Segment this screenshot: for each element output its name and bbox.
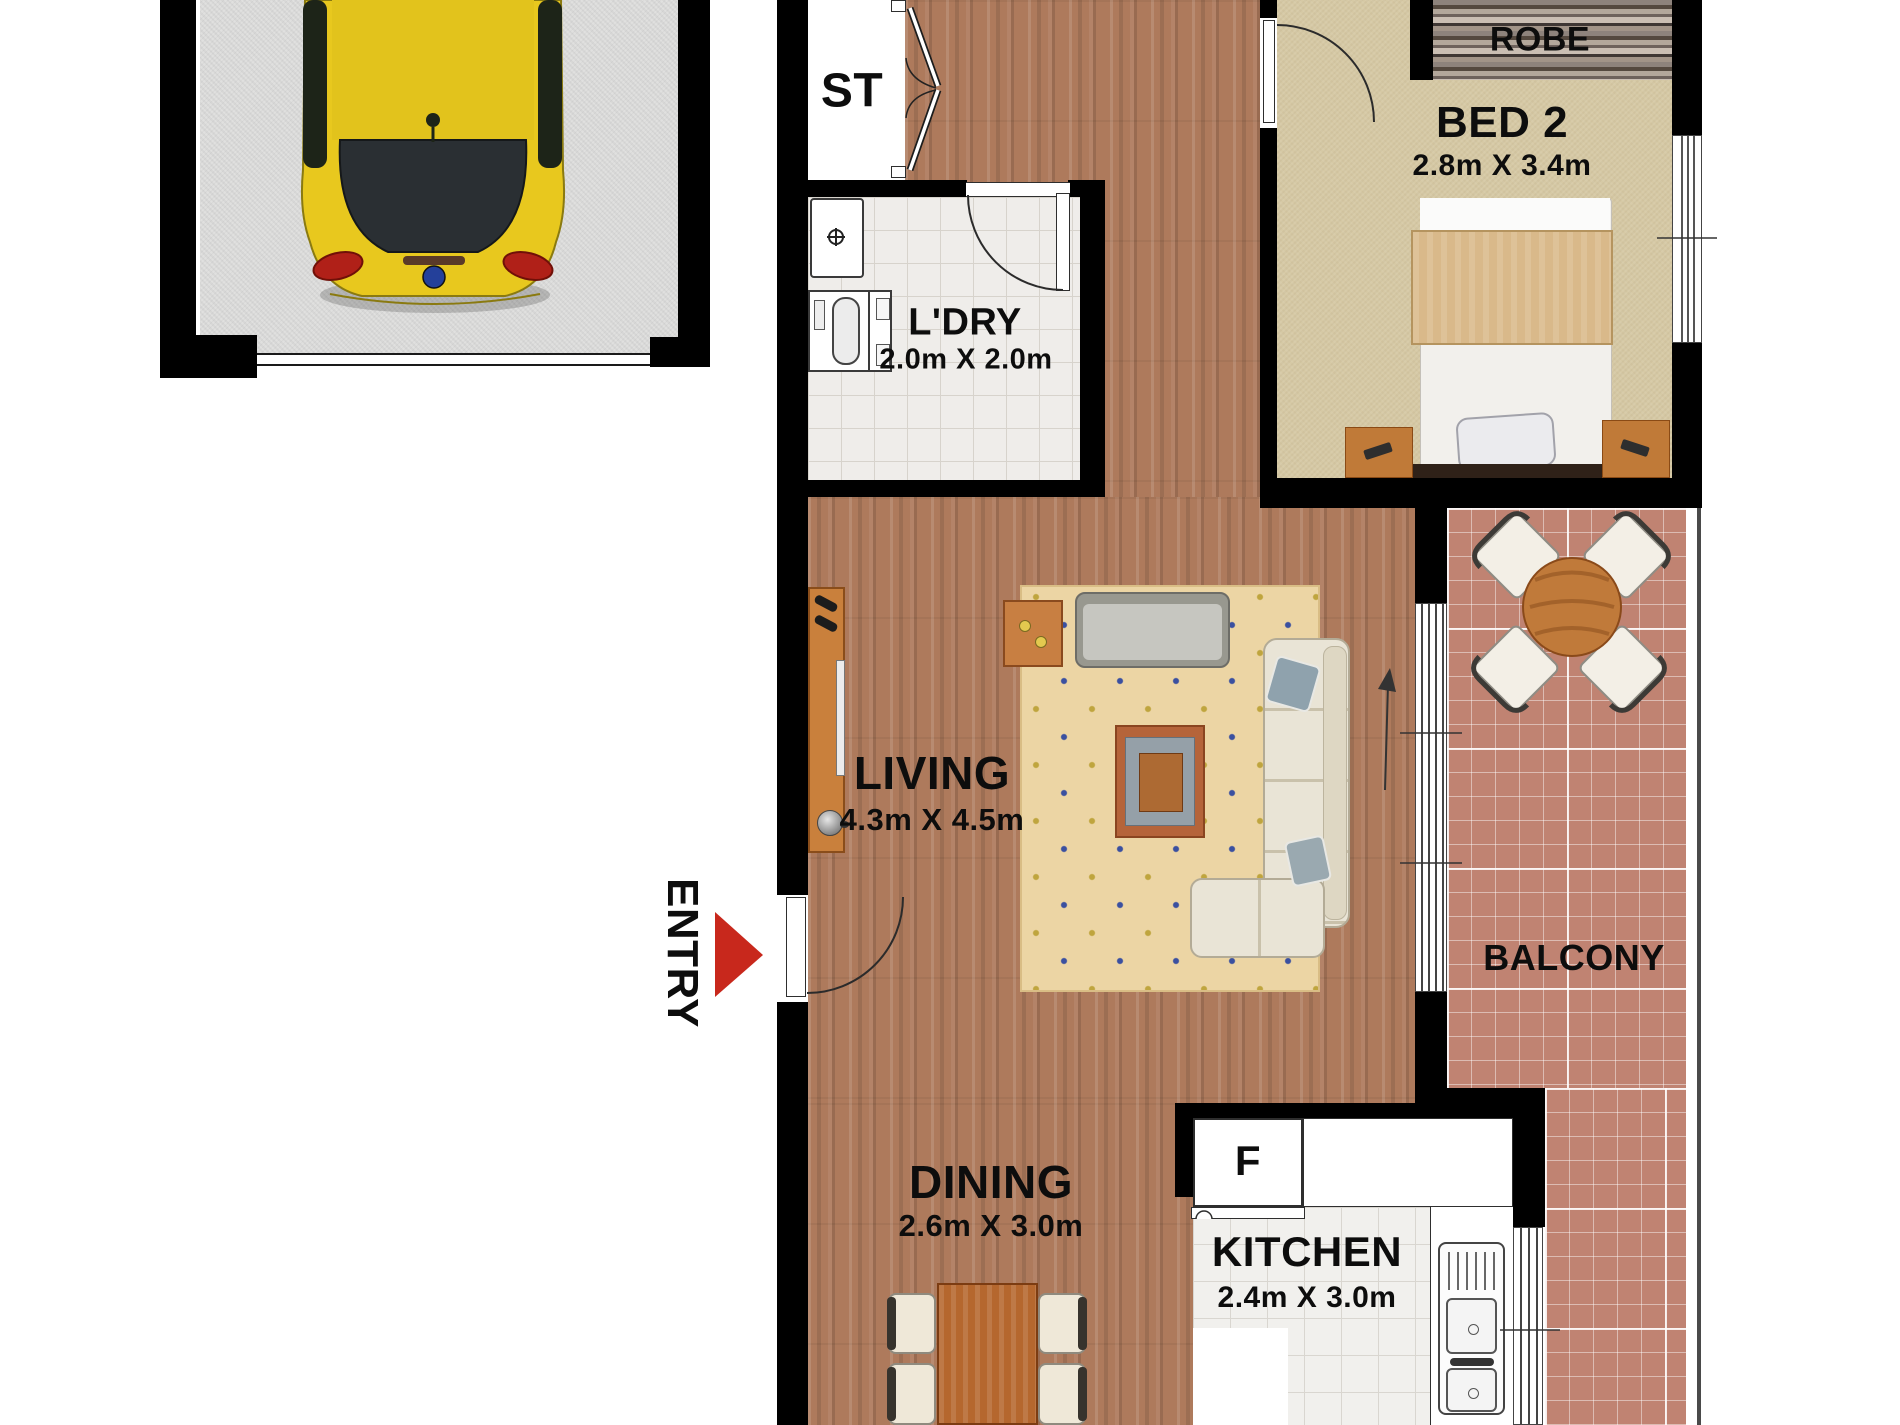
- tap-symbol-icon: [827, 228, 845, 246]
- balcony-table: [1523, 558, 1621, 656]
- laundry-door-arc: [968, 195, 1063, 290]
- floor-plan: ST L'DRY 2.0m X 2.0m ROBE BED 2 2.8m X 3…: [0, 0, 1900, 1425]
- laundry-dims: 2.0m X 2.0m: [879, 344, 1052, 377]
- car: [302, 0, 564, 313]
- fridge-handle: [1196, 1211, 1212, 1219]
- entry-label: ENTRY: [657, 878, 707, 1028]
- living-label: LIVING: [854, 746, 1010, 800]
- living-dims: 4.3m X 4.5m: [840, 802, 1025, 838]
- entry-arrow-icon: [715, 912, 763, 997]
- kitchen-label: KITCHEN: [1212, 1228, 1402, 1276]
- kitchen-dims: 2.4m X 3.0m: [1218, 1281, 1397, 1315]
- bed2-door-arc: [1277, 25, 1374, 122]
- dining-label: DINING: [909, 1155, 1073, 1209]
- robe-label: ROBE: [1490, 21, 1590, 60]
- laundry-label: L'DRY: [908, 302, 1022, 345]
- dining-dims: 2.6m X 3.0m: [899, 1208, 1084, 1244]
- storage-bifold-door: [906, 8, 938, 170]
- fridge-label: F: [1235, 1137, 1261, 1185]
- entry-door-arc: [807, 897, 903, 993]
- north-arrow-icon: [1378, 668, 1396, 790]
- bed2-label: BED 2: [1436, 98, 1568, 148]
- bed2-dims: 2.8m X 3.4m: [1413, 149, 1592, 183]
- storage-label: ST: [821, 64, 883, 119]
- balcony-label: BALCONY: [1483, 937, 1665, 979]
